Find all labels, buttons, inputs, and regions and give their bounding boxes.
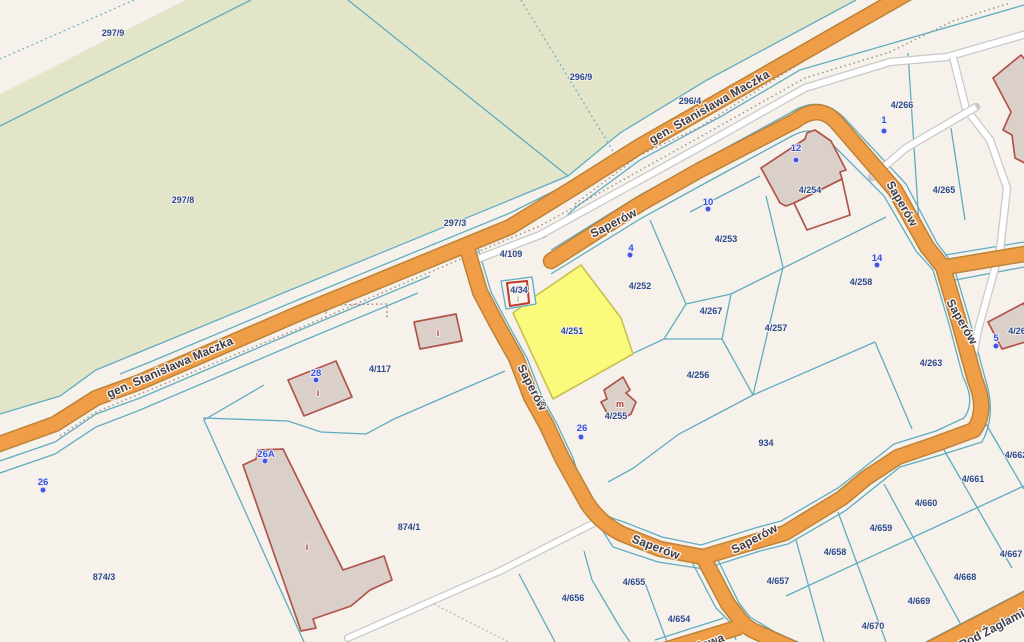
svg-text:26A: 26A xyxy=(257,449,275,460)
svg-text:12: 12 xyxy=(791,143,802,154)
svg-text:i: i xyxy=(517,295,519,304)
svg-text:4/34: 4/34 xyxy=(510,285,528,295)
svg-text:4/668: 4/668 xyxy=(954,572,977,582)
svg-text:934: 934 xyxy=(758,438,773,448)
svg-text:4/254: 4/254 xyxy=(799,185,822,195)
svg-text:4/257: 4/257 xyxy=(765,323,788,333)
svg-text:296/4: 296/4 xyxy=(679,96,702,106)
svg-text:4/258: 4/258 xyxy=(850,277,873,287)
svg-text:i: i xyxy=(306,542,309,552)
svg-text:4/266: 4/266 xyxy=(891,100,914,110)
svg-text:297/3: 297/3 xyxy=(444,218,467,228)
svg-text:5: 5 xyxy=(993,333,999,344)
svg-text:4: 4 xyxy=(628,243,634,254)
svg-text:297/9: 297/9 xyxy=(102,28,125,38)
svg-text:874/3: 874/3 xyxy=(93,572,116,582)
svg-text:i: i xyxy=(317,388,320,398)
svg-text:4/656: 4/656 xyxy=(562,593,585,603)
svg-text:4/662: 4/662 xyxy=(1005,450,1024,460)
svg-text:4/660: 4/660 xyxy=(915,498,938,508)
svg-text:m: m xyxy=(616,399,624,409)
svg-text:4/109: 4/109 xyxy=(500,249,523,259)
svg-text:4/659: 4/659 xyxy=(870,523,893,533)
svg-text:4/667: 4/667 xyxy=(1000,549,1023,559)
svg-text:i: i xyxy=(437,328,440,338)
svg-text:26: 26 xyxy=(577,423,588,434)
svg-text:4/655: 4/655 xyxy=(623,577,646,587)
svg-text:1: 1 xyxy=(881,115,887,126)
svg-text:4/251: 4/251 xyxy=(561,326,584,336)
svg-text:26: 26 xyxy=(38,477,49,488)
svg-text:4/670: 4/670 xyxy=(862,621,885,631)
svg-text:296/9: 296/9 xyxy=(570,72,593,82)
svg-text:4/669: 4/669 xyxy=(908,596,931,606)
svg-text:4/654: 4/654 xyxy=(668,614,691,624)
svg-text:4/117: 4/117 xyxy=(369,364,391,374)
svg-text:10: 10 xyxy=(703,197,714,208)
svg-text:4/263: 4/263 xyxy=(920,358,943,368)
svg-text:4/255: 4/255 xyxy=(605,411,628,421)
svg-text:4/252: 4/252 xyxy=(629,281,652,291)
svg-text:28: 28 xyxy=(311,368,322,379)
svg-text:874/1: 874/1 xyxy=(398,522,421,532)
svg-text:4/265: 4/265 xyxy=(933,185,956,195)
svg-text:14: 14 xyxy=(872,253,883,264)
svg-text:4/267: 4/267 xyxy=(700,306,723,316)
svg-text:4/657: 4/657 xyxy=(767,576,790,586)
svg-text:297/8: 297/8 xyxy=(172,195,195,205)
svg-text:4/658: 4/658 xyxy=(824,547,847,557)
svg-text:4/256: 4/256 xyxy=(687,370,710,380)
svg-text:4/661: 4/661 xyxy=(962,474,985,484)
svg-text:4/26: 4/26 xyxy=(1008,326,1024,336)
svg-text:4/253: 4/253 xyxy=(715,234,738,244)
